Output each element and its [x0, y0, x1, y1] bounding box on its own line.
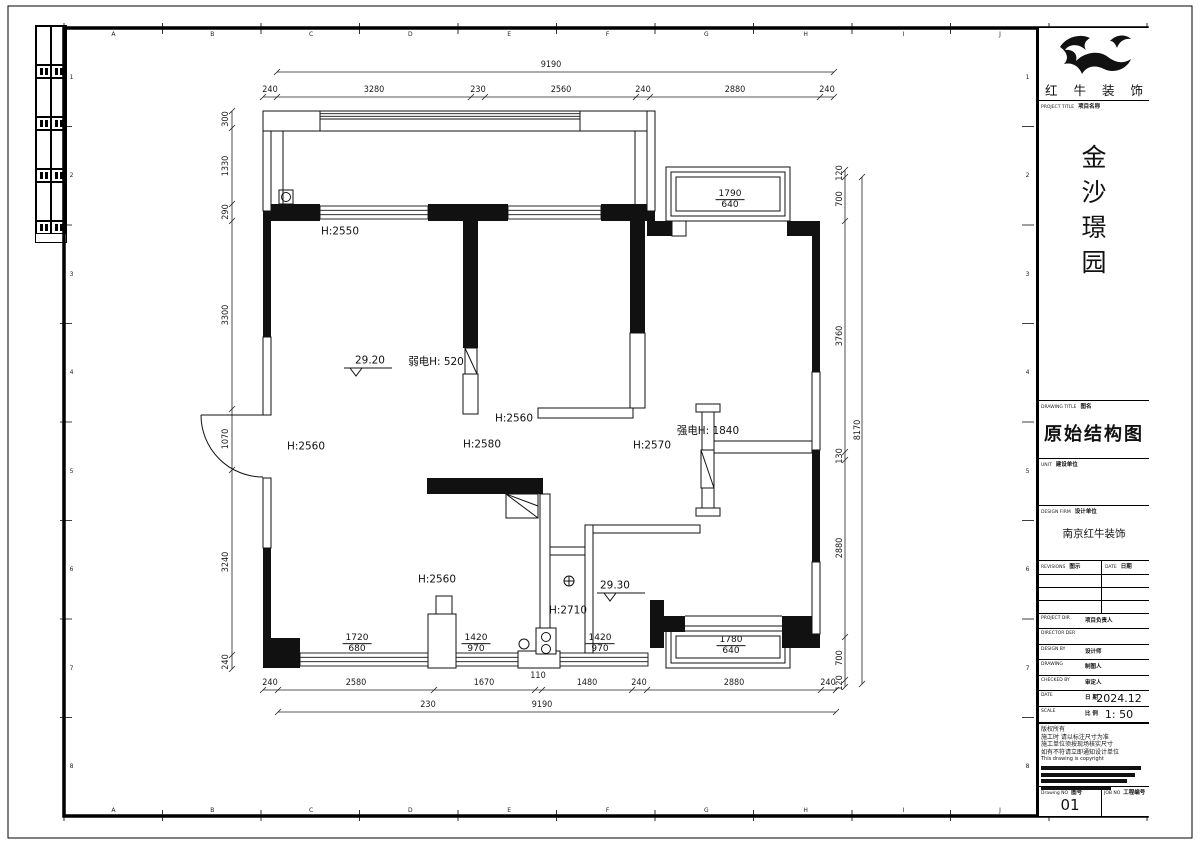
row-project-dir: PROJECT DIR 项目负责人	[1039, 613, 1149, 629]
dim-top-overall: 9190	[541, 60, 562, 70]
dim-right-6: 120	[835, 675, 845, 690]
ruler-ticks	[60, 23, 1147, 821]
label-bedroom2-height: H:2560	[495, 412, 533, 425]
title-block-footer: Drawing NO 图号 01 JOB NO 工程编号	[1039, 786, 1149, 817]
drawing-sheet: ABCDEFGHIJK ABCDEFGHIJK 12345678 1234567…	[0, 0, 1200, 845]
bay-windows	[666, 167, 790, 668]
scale-value: 1: 50	[1091, 708, 1147, 721]
dim-left-3: 3300	[221, 305, 231, 326]
row-scale: SCALE 比 例 1: 50	[1039, 706, 1149, 722]
dim-top-2: 230	[470, 85, 485, 95]
drawing-no-cell: Drawing NO 图号 01	[1039, 787, 1102, 817]
dim-left-0: 300	[221, 111, 231, 126]
dim-top-5: 2880	[725, 85, 746, 95]
signature-strip	[35, 25, 67, 243]
label-level-lower: 29.30	[600, 579, 630, 592]
ruler-letters-top: ABCDEFGHIJK	[64, 29, 1147, 39]
dim-left-4: 1070	[221, 429, 231, 450]
dim-right-4: 2880	[835, 538, 845, 559]
dim-bottom-3: 110	[530, 671, 545, 681]
job-no-cell: JOB NO 工程编号	[1102, 787, 1149, 817]
design-firm-label: DESIGN FIRM 设计单位	[1039, 506, 1151, 516]
dim-top-4: 240	[635, 85, 650, 95]
dim-left-6: 240	[221, 654, 231, 669]
label-living-height-left: H:2560	[287, 440, 325, 453]
label-bath-height: H:2710	[549, 604, 587, 617]
dim-top-3: 2560	[551, 85, 572, 95]
floor-plan-linework	[0, 0, 1200, 845]
brand-name: 红 牛 装 饰	[1039, 80, 1149, 99]
dim-bottom-overall: 9190	[532, 700, 553, 710]
dim-bottom-5: 240	[631, 678, 646, 688]
dim-bottom-6: 2880	[724, 678, 745, 688]
label-level-upper: 29.20	[355, 354, 385, 367]
redniu-bull-logo-icon	[1052, 31, 1136, 79]
row-director: DIRECTOR DER	[1039, 628, 1149, 644]
row-drawing-by: DRAWING 制图人	[1039, 659, 1149, 675]
dim-bottom-2: 1670	[474, 678, 495, 688]
dim-left-5: 3240	[221, 552, 231, 573]
window-label-bay-bottom: 1780 640	[717, 635, 746, 657]
dim-right-1: 700	[835, 191, 845, 206]
dim-top-6: 240	[819, 85, 834, 95]
dim-left-1: 1330	[221, 156, 231, 177]
window-label-bay-top: 1790 640	[716, 189, 745, 211]
dim-top-0: 240	[262, 85, 277, 95]
project-name: 金沙璟园	[1039, 140, 1149, 280]
row-checked-by: CHECKED BY 审定人	[1039, 675, 1149, 691]
window-label-left: 1720 680	[343, 633, 372, 655]
ruler-letters-bottom: ABCDEFGHIJK	[64, 805, 1147, 815]
label-room-right-height: H:2570	[633, 439, 671, 452]
revisions-label: REVISIONS 图示	[1039, 561, 1101, 571]
dim-right-0: 120	[835, 165, 845, 180]
dim-right-2: 3760	[835, 326, 845, 347]
ruler-numbers-left: 12345678	[67, 28, 76, 816]
dim-bottom-1: 2580	[346, 678, 367, 688]
smudged-text-bar	[1041, 779, 1127, 783]
dim-bottom-4: 1480	[577, 678, 598, 688]
smudged-text-bar	[1041, 773, 1135, 777]
dim-right-5: 700	[835, 650, 845, 665]
revisions-date-label: DATE 日期	[1103, 561, 1149, 571]
dim-right-overall: 8170	[853, 420, 863, 441]
label-hall-height: H:2580	[463, 438, 501, 451]
dim-bottom-0: 240	[262, 678, 277, 688]
copyright-notes: 版权所有 施工时 请以标注尺寸为准 施工单位须按现场核实尺寸 如有不符请立即通知…	[1039, 724, 1149, 794]
label-weak-current-box: 弱电H: 520	[408, 353, 464, 369]
date-value: 2024.12	[1091, 692, 1147, 705]
drawing-title-label: DRAWING TITLE 图名	[1039, 401, 1151, 411]
dim-top-1: 3280	[364, 85, 385, 95]
title-block: 红 牛 装 饰 PROJECT TITLE 项目名称 金沙璟园 DRAWING …	[1036, 28, 1149, 816]
dim-right-3: 130	[835, 448, 845, 463]
project-name-label: PROJECT TITLE 项目名称	[1039, 101, 1151, 111]
label-living-height-bottom: H:2560	[418, 573, 456, 586]
dim-bottom-7: 240	[820, 678, 835, 688]
drawing-no-value: 01	[1039, 796, 1101, 814]
dim-bottom-overall-prefix: 230	[420, 700, 435, 710]
smudged-text-bar	[1041, 766, 1141, 770]
dim-left-2: 290	[221, 204, 231, 219]
drawing-title: 原始结构图	[1039, 420, 1149, 446]
label-strong-current-box: 强电H: 1840	[677, 422, 739, 438]
row-date: DATE 日 期 2024.12	[1039, 690, 1149, 706]
window-label-right: 1420 970	[586, 633, 615, 655]
unit-label: UNIT 建设单位	[1039, 459, 1151, 469]
ruler-numbers-right: 12345678	[1023, 28, 1032, 816]
window-label-mid: 1420 970	[462, 633, 491, 655]
row-design-by: DESIGN BY 设计师	[1039, 644, 1149, 660]
design-firm: 南京红牛装饰	[1039, 526, 1149, 541]
label-balcony-height: H:2550	[321, 225, 359, 238]
